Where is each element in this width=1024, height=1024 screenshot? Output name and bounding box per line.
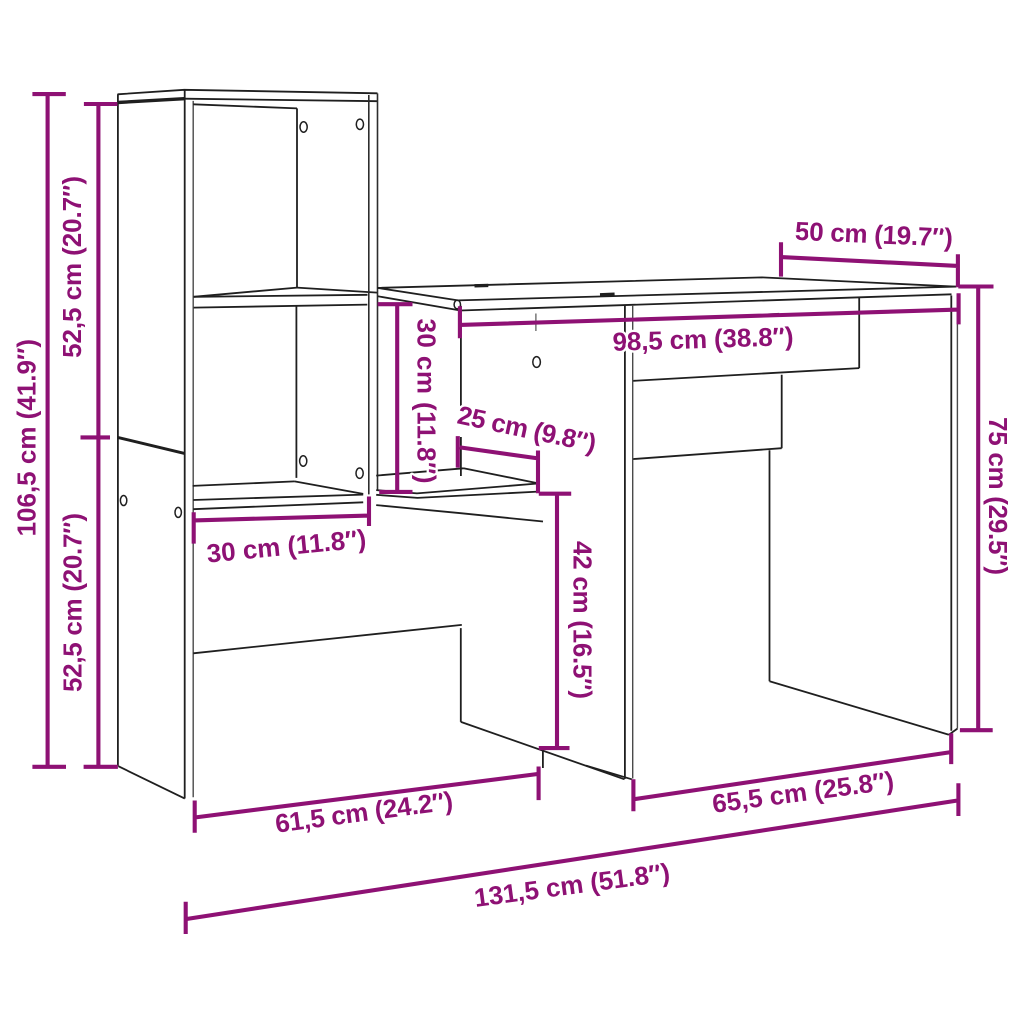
svg-text:61,5 cm (24.2″): 61,5 cm (24.2″) bbox=[273, 785, 454, 838]
svg-text:50 cm (19.7″): 50 cm (19.7″) bbox=[794, 216, 953, 253]
svg-text:75 cm (29.5″): 75 cm (29.5″) bbox=[983, 417, 1013, 575]
svg-text:131,5 cm (51.8″): 131,5 cm (51.8″) bbox=[472, 857, 671, 913]
svg-text:30 cm (11.8″): 30 cm (11.8″) bbox=[412, 319, 442, 484]
svg-text:30 cm (11.8″): 30 cm (11.8″) bbox=[205, 523, 367, 568]
svg-text:52,5 cm (20.7″): 52,5 cm (20.7″) bbox=[58, 513, 88, 692]
svg-text:106,5 cm (41.9″): 106,5 cm (41.9″) bbox=[12, 339, 42, 536]
svg-text:98,5 cm (38.8″): 98,5 cm (38.8″) bbox=[612, 321, 794, 357]
svg-text:52,5 cm (20.7″): 52,5 cm (20.7″) bbox=[57, 176, 87, 358]
svg-text:42 cm (16.5″): 42 cm (16.5″) bbox=[568, 541, 598, 699]
